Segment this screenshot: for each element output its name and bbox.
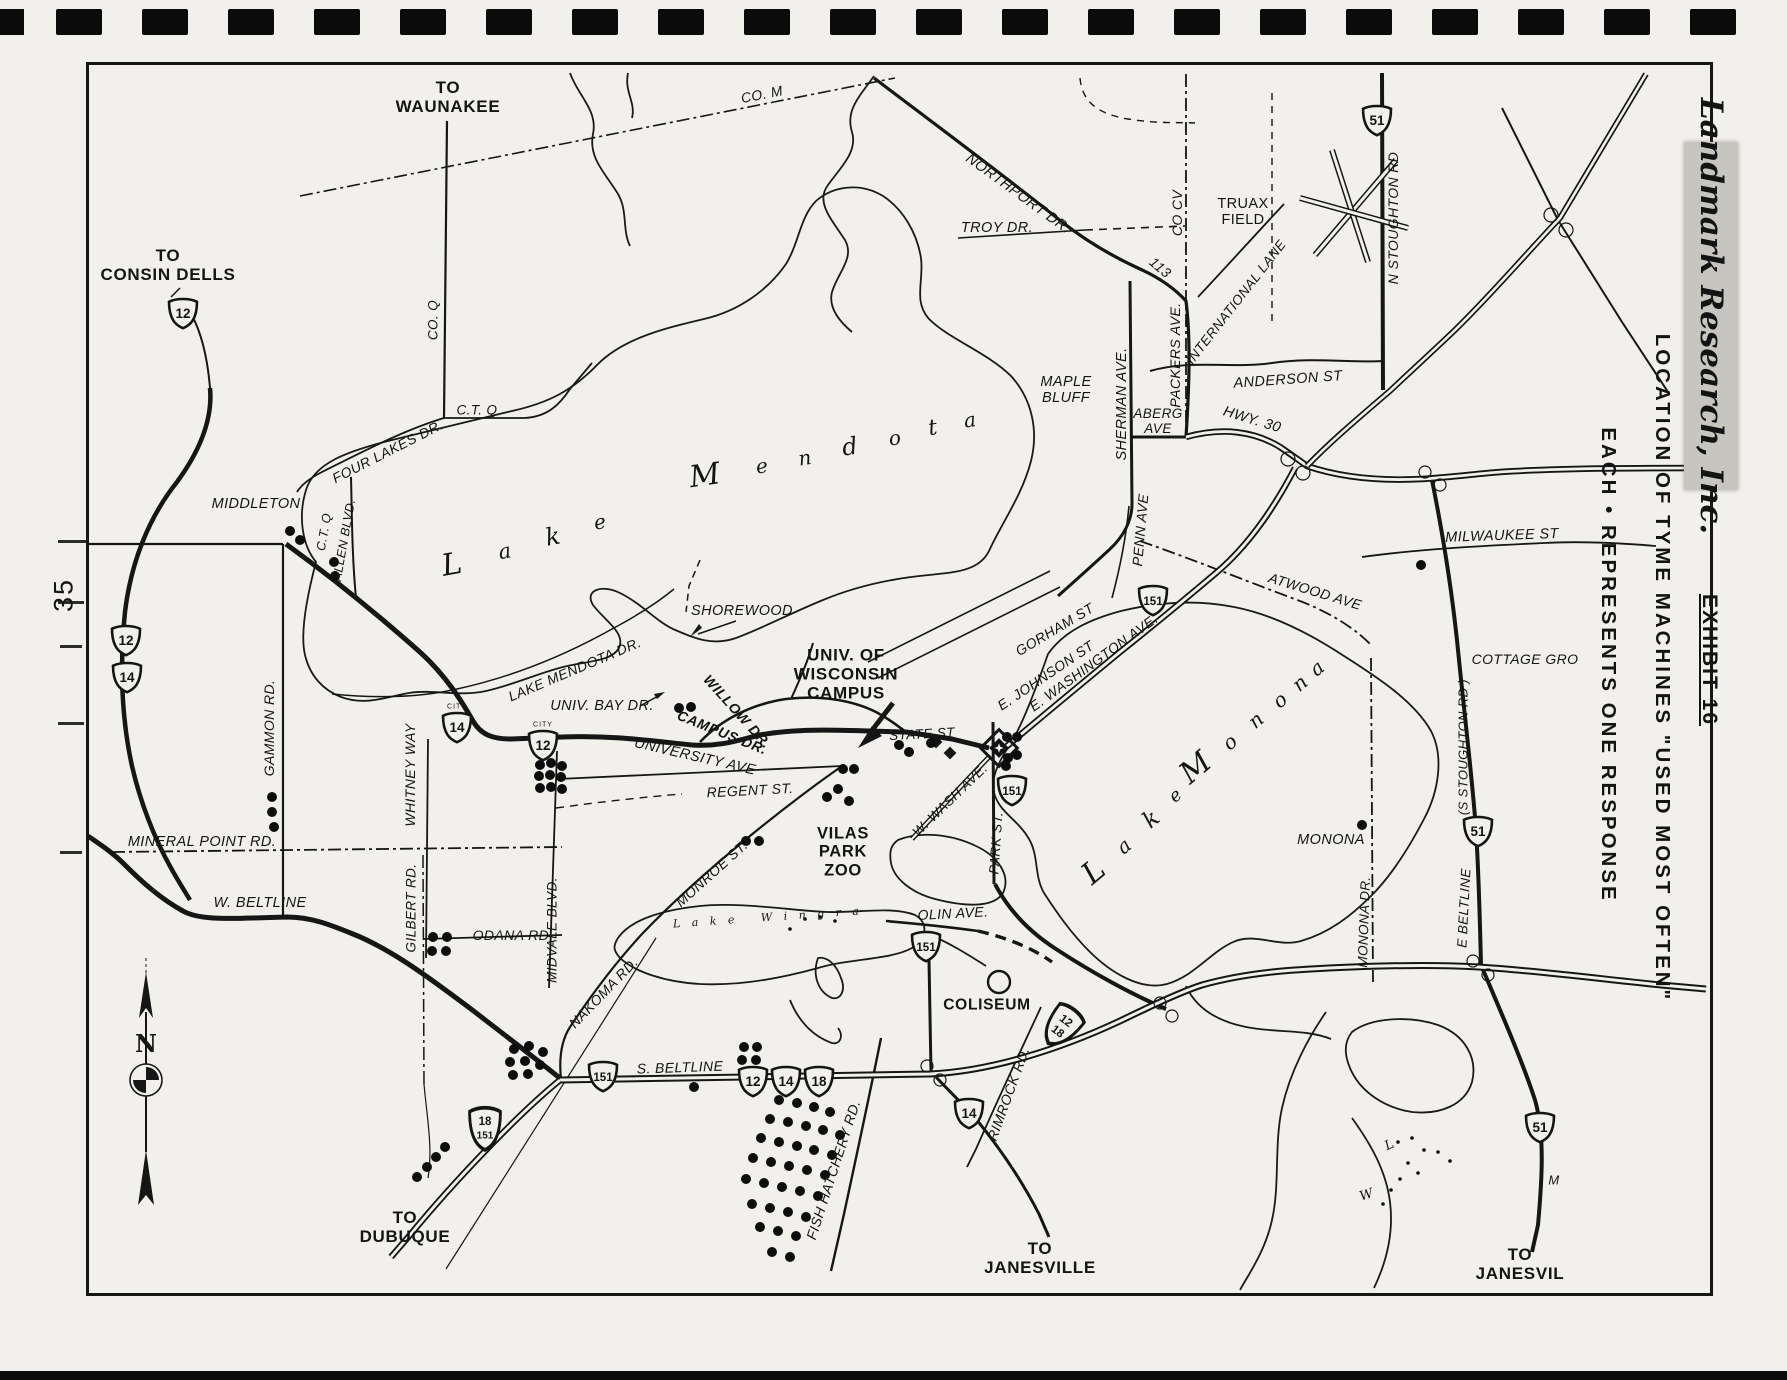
response-dot [520,1056,530,1066]
shield-city-label: CITY [533,722,553,729]
response-dot [1012,732,1022,742]
shield-city-label: CITY [447,704,467,711]
highway-shield-14: 14 [772,1067,800,1096]
road-whitney-way [426,739,428,958]
response-dot [774,1095,784,1105]
road-co-m [300,78,895,196]
highway-shield-151: 151 [1139,586,1167,615]
roads-group [88,73,1706,1271]
response-dot [557,784,567,794]
road-rimrock [967,1007,1041,1167]
response-dot [534,771,544,781]
map-canvas: N 121214CITY14CITY1251151151151151181511… [0,0,1787,1380]
exhibit-title: LOCATION OF TYME MACHINES "USED MOST OFT… [1650,334,1674,1003]
response-dot [766,1157,776,1167]
response-dot [752,1042,762,1052]
map-speck [788,927,792,931]
response-dot [535,783,545,793]
response-dot [773,1226,783,1236]
road-s-beltline [560,966,1706,1081]
highway-shield-14: CITY14 [443,704,471,743]
response-dot [295,535,305,545]
shield-number: 151 [1002,786,1022,798]
map-speck [1436,1150,1440,1154]
lake-waubesa-shore [1240,1012,1326,1290]
response-dot [545,770,555,780]
shield-number: 14 [119,670,135,685]
shield-number: 14 [449,720,465,735]
response-dot [686,702,696,712]
road-allen-blvd [351,477,356,598]
road-median [1307,74,1646,466]
map-speck [1389,1188,1393,1192]
response-dot [285,526,295,536]
response-dot [556,772,566,782]
road-monroe [642,766,842,934]
shield-number: 12 [175,306,190,321]
highway-shield-14: 14 [113,663,141,692]
road-14-janesville [936,1077,1049,1237]
response-dot [791,1231,801,1241]
response-dot [538,1047,548,1057]
response-dot [689,1082,699,1092]
response-dot [795,1186,805,1196]
shorewood-leader [686,560,736,637]
response-dot [267,792,277,802]
response-dot [441,946,451,956]
route-shields-group: 121214CITY14CITY125115115115115118151121… [112,106,1554,1150]
road-penn [1112,506,1129,598]
road-four-lakes-dr [297,418,444,492]
response-dot [523,1069,533,1079]
highway-shield-151: 151 [912,932,940,961]
road-nakoma [560,934,642,1079]
response-dot [765,1203,775,1213]
response-dot [737,1055,747,1065]
response-dot [440,1142,450,1152]
response-dot [792,1098,802,1108]
road-monona-dr [1371,658,1373,982]
road-mineral-point [112,847,562,852]
map-speck [1398,1177,1402,1181]
response-dot [827,1150,837,1160]
rail-line [446,938,656,1269]
response-dot [535,760,545,770]
response-dot [1012,750,1022,760]
response-dot [546,782,556,792]
response-dot [801,1121,811,1131]
dells-leader [171,288,180,297]
response-dot [1357,820,1367,830]
scanned-report-page: { "page": {"number": "35"}, "margin": { … [0,0,1787,1380]
response-dot [330,571,340,581]
response-dot [825,1107,835,1117]
response-dot [818,1125,828,1135]
road-speedway [556,794,682,808]
road-willow-dr [791,643,813,699]
response-dot [784,1161,794,1171]
response-dot [801,1212,811,1222]
road-atwood [1140,541,1372,646]
brand-name: Landmark Research, Inc. [1693,98,1729,534]
response-dot [926,738,936,748]
shield-number: 151 [1143,596,1163,608]
response-dot [777,1182,787,1192]
response-dot [739,1042,749,1052]
response-dot [844,796,854,806]
response-dot [759,1178,769,1188]
road-lake-mendota-dr [332,589,674,697]
map-speck [833,919,837,923]
coliseum-circle [988,971,1010,993]
univ-bay-leader [640,692,665,706]
mud-lake-outline [1346,1019,1474,1112]
response-dot [505,1057,515,1067]
highway-shield-12: 12 [739,1067,767,1096]
response-dot [833,784,843,794]
shield-number: 18 [811,1074,827,1089]
map-speck [1406,1161,1410,1165]
campus-arrow [858,703,893,748]
road-international [1198,204,1284,297]
response-dot [267,807,277,817]
zoo-pond [790,1000,841,1043]
response-dot [509,1044,519,1054]
road-e-johnson [878,587,1060,678]
response-dot [741,1174,751,1184]
response-dot [674,703,684,713]
lake-waubesa-shore [1352,1118,1391,1288]
road-gorham [868,571,1050,662]
shield-number: 151 [477,1131,494,1142]
highway-shield-51: 51 [1363,106,1391,135]
response-dot [774,1137,784,1147]
highway-shield-151: 151 [998,776,1026,805]
response-dot [747,1199,757,1209]
highway-shield-51: 51 [1526,1113,1554,1142]
shield-number: 51 [1532,1120,1548,1135]
landmark-diamond [944,747,957,760]
response-dot [269,822,279,832]
response-dot [754,836,764,846]
road-olin [886,921,978,931]
response-dot [783,1207,793,1217]
road-151-south [929,960,931,1072]
response-dot [792,1141,802,1151]
highway-shield-151: 151 [589,1062,617,1091]
response-dot [751,1055,761,1065]
highway-shield-12: 12 [169,299,197,328]
compass-north-arrow: N [130,958,162,1205]
response-dot [756,1133,766,1143]
yahara-river-south [1186,986,1331,1039]
response-dot [428,932,438,942]
response-dot [535,1060,545,1070]
shield-number: 14 [961,1106,977,1121]
response-dot [431,1152,441,1162]
response-dot [755,1222,765,1232]
road-verona [391,1080,560,1257]
response-dot [822,792,832,802]
response-dot [802,1165,812,1175]
response-dot [422,1162,432,1172]
response-dot [741,836,751,846]
response-dot [1002,732,1012,742]
road-51-south [1481,965,1542,1252]
map-speck [1416,1171,1420,1175]
road-s-stoughton [1432,480,1481,965]
yahara-river [823,76,874,332]
shield-number: 14 [778,1074,794,1089]
map-speck [1448,1159,1452,1163]
road-olin-dashed [978,931,1052,962]
response-dot [1001,761,1011,771]
response-dot [765,1114,775,1124]
response-dot [412,1172,422,1182]
response-dot [813,1191,823,1201]
response-dot [508,1070,518,1080]
road-troy [958,230,1085,238]
road-troy-dash [1085,226,1185,230]
lake-wingra-outline [614,905,924,984]
lake-mendota-outline [302,187,1034,700]
truax-boundary [1080,78,1195,123]
response-dot [524,1041,534,1051]
map-speck [1381,1202,1385,1206]
response-dot [427,946,437,956]
response-dot [904,747,914,757]
page-number: 35 [49,578,80,612]
shield-number: 18 [479,1116,492,1128]
response-dot [835,1130,845,1140]
response-dot [849,764,859,774]
highway-shield-51: 51 [1464,817,1492,846]
response-dot [783,1117,793,1127]
response-dot [329,557,339,567]
legend-text: EACH • REPRESENTS ONE RESPONSE [1596,427,1620,902]
response-dot [809,1145,819,1155]
stream [627,73,633,118]
shield-number: 12 [118,633,133,648]
response-dot [748,1153,758,1163]
map-speck [803,917,807,921]
road-sherman [1058,281,1132,596]
map-speck [818,915,822,919]
response-dots-group [267,526,1452,1262]
shield-number: 12 [745,1074,760,1089]
map-symbols-group: N [130,208,1573,1205]
map-speck [1410,1136,1414,1140]
road-us51-ne [1307,74,1646,466]
response-dot [546,758,556,768]
road-co-q [444,121,447,418]
response-dot [838,764,848,774]
response-dot [557,761,567,771]
response-dot [767,1247,777,1257]
response-dot [442,932,452,942]
shield-number: 51 [1369,113,1385,128]
response-dot [820,1170,830,1180]
highway-shield-12: CITY12 [529,722,557,761]
shield-number: 51 [1470,824,1486,839]
response-dot [785,1252,795,1262]
stream [570,73,630,246]
exhibit-heading: EXHIBIT 16 [1697,594,1721,726]
response-dot [809,1102,819,1112]
shield-number: 12 [535,738,550,753]
highway-shield-12: 12 [112,626,140,655]
shield-number: 151 [916,942,936,954]
shield-number: 151 [593,1072,613,1084]
road-median [560,966,1706,1081]
road-median [1186,432,1705,480]
map-speck [1422,1148,1426,1152]
road-regent [558,766,842,779]
response-dot [894,740,904,750]
road-median [912,757,989,839]
map-speck [1396,1140,1400,1144]
road-w-beltline [88,836,561,1079]
interchange-loops [921,208,1573,1086]
highway-shield-18: 18 [805,1067,833,1096]
monona-bay-outline [890,835,1005,905]
road-gilbert [423,855,424,1084]
response-dot [1416,560,1426,570]
compass-n-label: N [135,1029,157,1058]
